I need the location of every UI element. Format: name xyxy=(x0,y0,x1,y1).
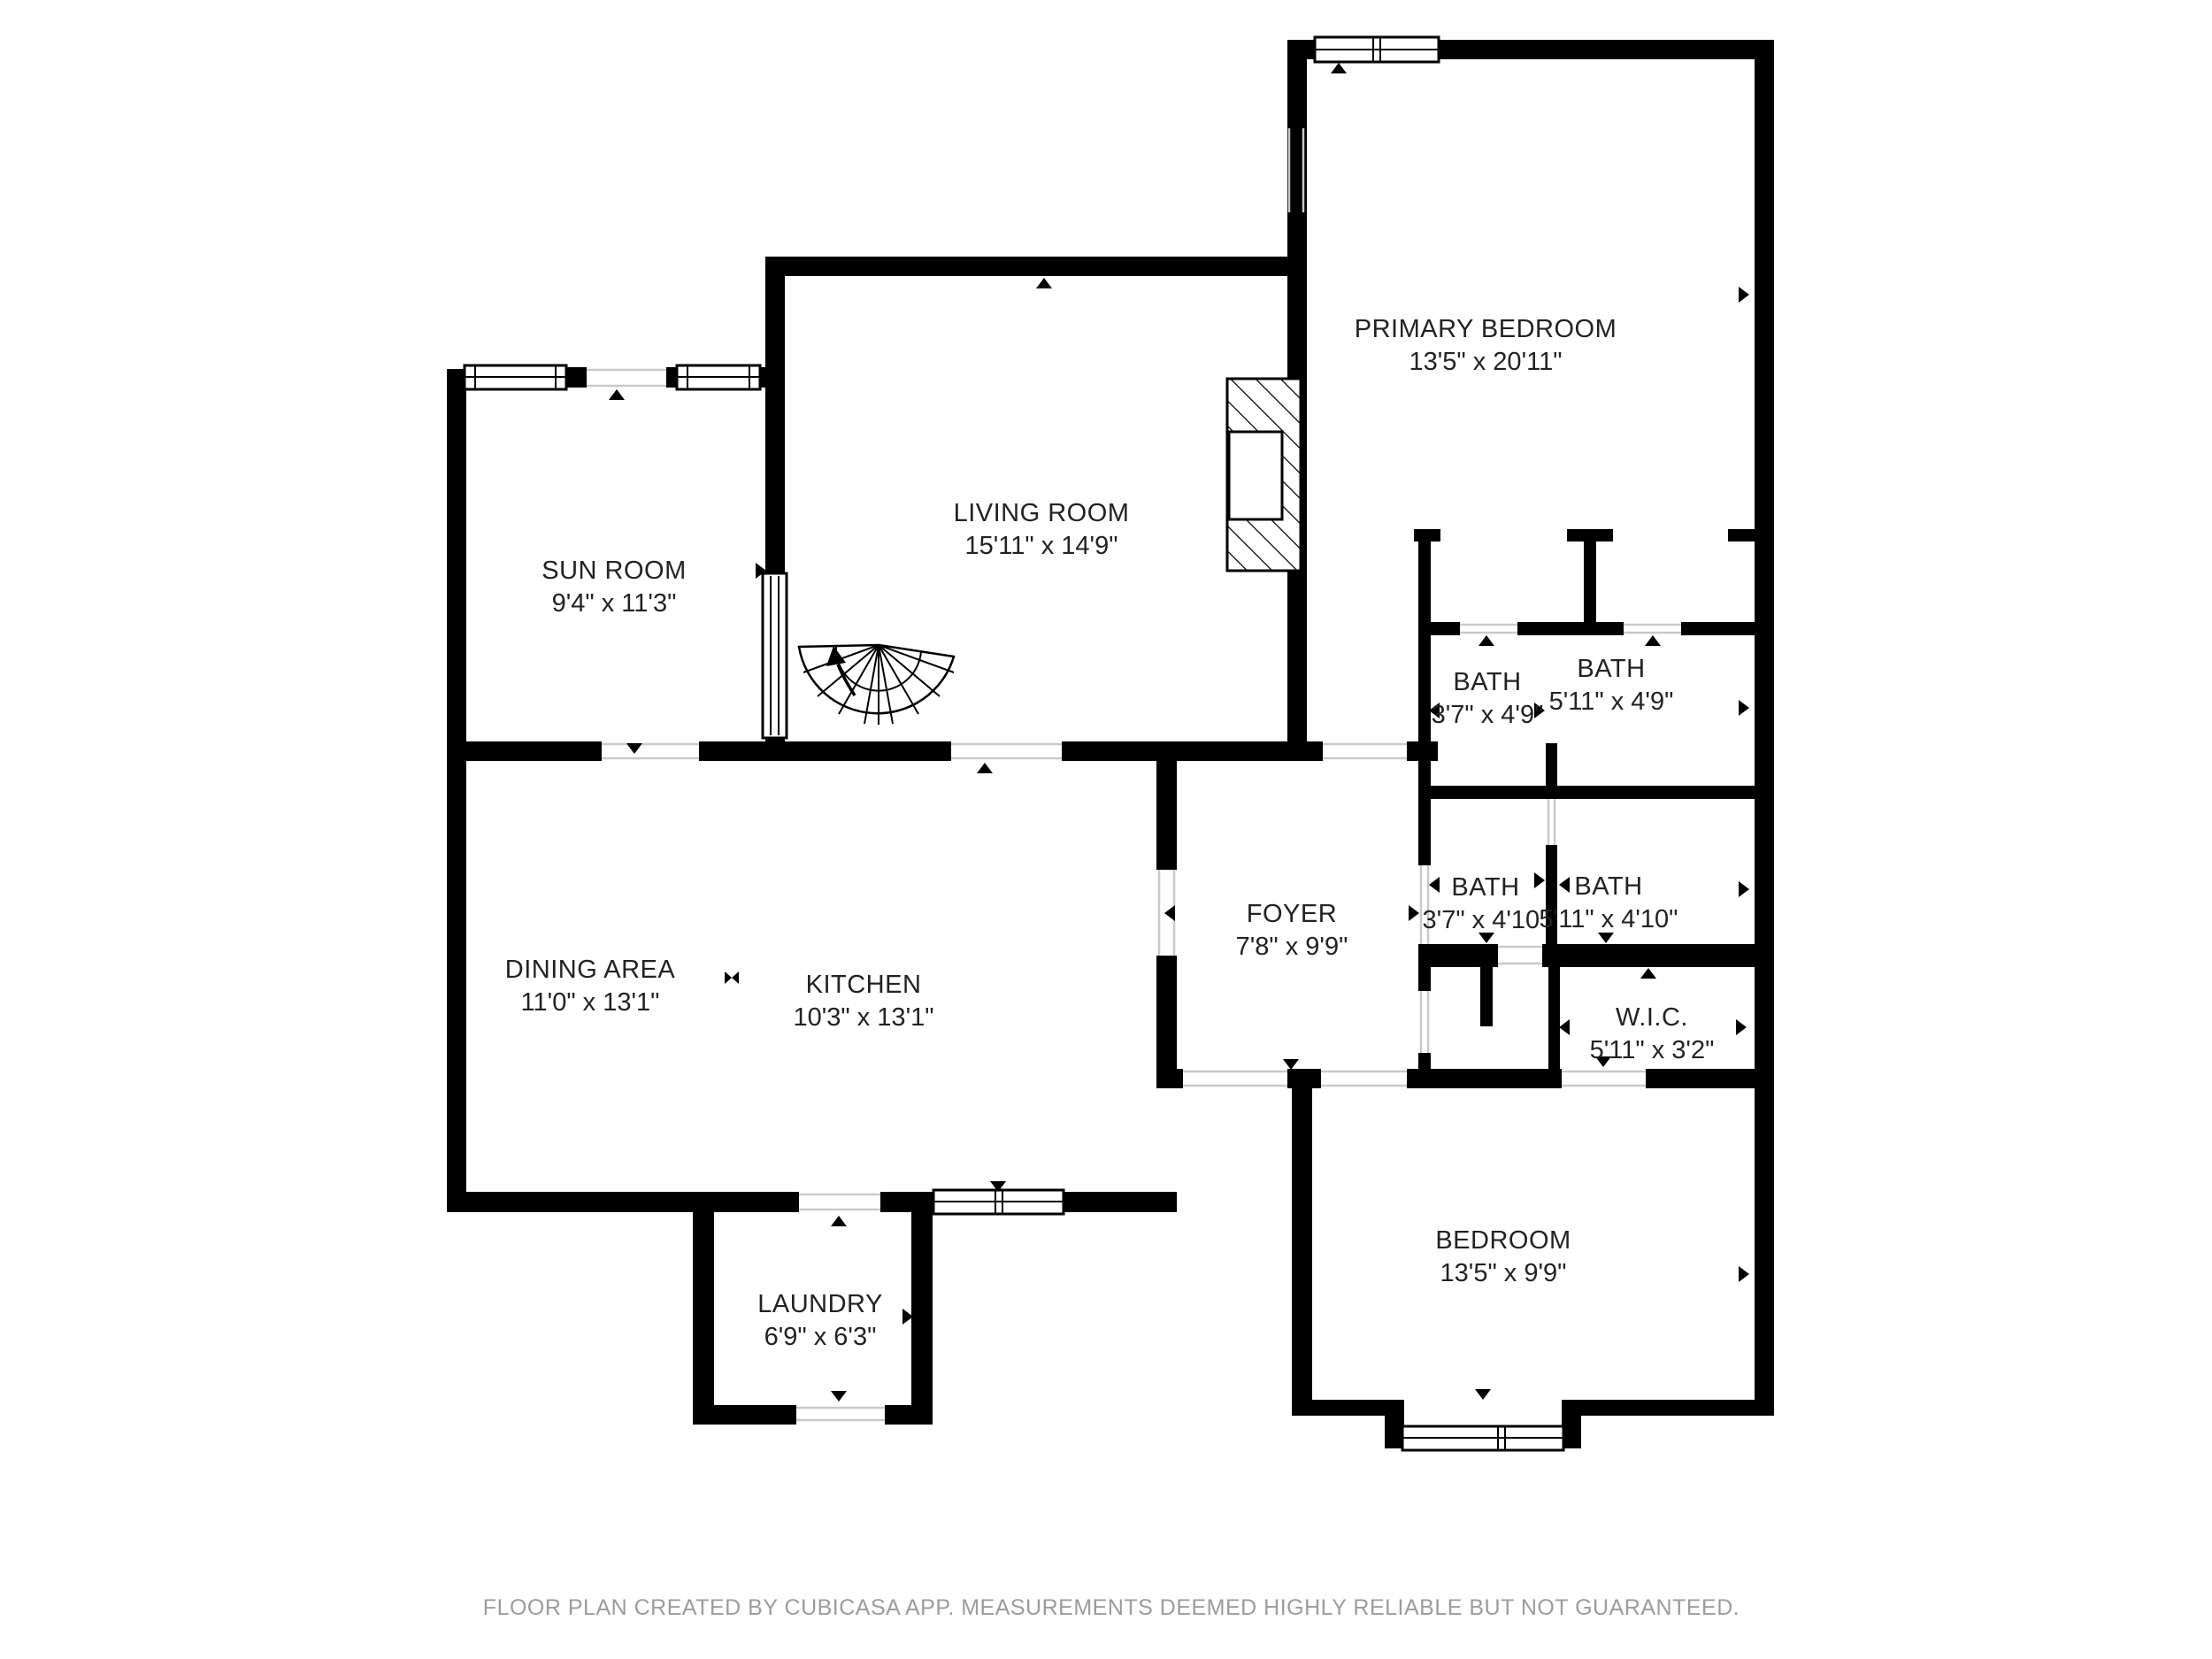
room-label-bath-top-left: BATH 3'7" x 4'9" xyxy=(1432,670,1544,728)
window-icon xyxy=(1402,1426,1563,1450)
room-label-laundry: LAUNDRY 6'9" x 6'3" xyxy=(757,1292,883,1350)
room-label-bedroom: BEDROOM 13'5" x 9'9" xyxy=(1435,1228,1571,1286)
room-dims: 9'4" x 11'3" xyxy=(541,591,687,617)
room-label-living-room: LIVING ROOM 15'11" x 14'9" xyxy=(954,501,1130,559)
room-name: FOYER xyxy=(1236,902,1348,927)
room-label-bath-mid-right: BATH 5'11" x 4'10" xyxy=(1540,874,1678,933)
room-name: LAUNDRY xyxy=(757,1292,883,1317)
room-dims: 5'11" x 4'10" xyxy=(1540,907,1678,933)
room-label-dining-area: DINING AREA 11'0" x 13'1" xyxy=(505,957,675,1016)
room-name: SUN ROOM xyxy=(541,558,687,584)
room-dims: 11'0" x 13'1" xyxy=(505,990,675,1016)
room-dims: 7'8" x 9'9" xyxy=(1236,934,1348,960)
room-name: KITCHEN xyxy=(793,972,933,998)
window-icon xyxy=(677,365,760,389)
room-name: BEDROOM xyxy=(1435,1228,1571,1254)
room-label-wic: W.I.C. 5'11" x 3'2" xyxy=(1590,1005,1715,1064)
room-label-bath-top-right: BATH 5'11" x 4'9" xyxy=(1549,657,1674,715)
room-label-bath-mid-left: BATH 3'7" x 4'10" xyxy=(1423,875,1549,933)
room-dims: 13'5" x 20'11" xyxy=(1355,349,1617,375)
room-name: PRIMARY BEDROOM xyxy=(1355,317,1617,342)
room-name: BATH xyxy=(1540,874,1678,900)
window-icon xyxy=(1315,37,1439,62)
room-label-foyer: FOYER 7'8" x 9'9" xyxy=(1236,902,1348,960)
room-dims: 15'11" x 14'9" xyxy=(954,534,1130,559)
floorplan-canvas: PRIMARY BEDROOM 13'5" x 20'11" SUN ROOM … xyxy=(0,0,2212,1659)
room-dims: 5'11" x 4'9" xyxy=(1549,689,1674,715)
room-dims: 5'11" x 3'2" xyxy=(1590,1038,1715,1064)
room-name: BATH xyxy=(1432,670,1544,695)
room-dims: 13'5" x 9'9" xyxy=(1435,1261,1571,1286)
room-name: LIVING ROOM xyxy=(954,501,1130,526)
room-name: BATH xyxy=(1423,875,1549,901)
room-dims: 3'7" x 4'9" xyxy=(1432,703,1544,728)
window-icon xyxy=(933,1190,1064,1214)
room-name: BATH xyxy=(1549,657,1674,682)
window-icon xyxy=(465,365,566,389)
room-label-primary-bedroom: PRIMARY BEDROOM 13'5" x 20'11" xyxy=(1355,317,1617,375)
room-dims: 10'3" x 13'1" xyxy=(793,1005,933,1031)
floorplan-drawing xyxy=(0,0,2212,1659)
room-label-kitchen: KITCHEN 10'3" x 13'1" xyxy=(793,972,933,1031)
room-label-sun-room: SUN ROOM 9'4" x 11'3" xyxy=(541,558,687,617)
window-icon xyxy=(763,573,787,738)
footer-disclaimer: FLOOR PLAN CREATED BY CUBICASA APP. MEAS… xyxy=(483,1595,1740,1621)
room-dims: 6'9" x 6'3" xyxy=(757,1325,883,1350)
room-name: DINING AREA xyxy=(505,957,675,983)
fireplace-icon xyxy=(1227,379,1301,571)
room-dims: 3'7" x 4'10" xyxy=(1423,908,1549,933)
curved-stairs-icon xyxy=(799,645,954,725)
room-name: W.I.C. xyxy=(1590,1005,1715,1031)
